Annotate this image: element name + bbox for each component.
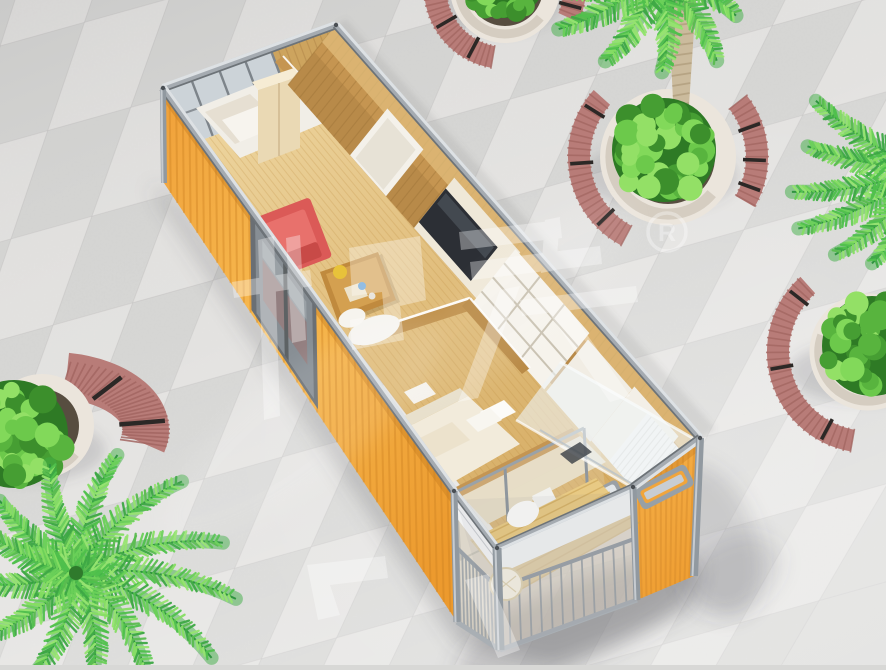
svg-text:R: R xyxy=(658,219,676,247)
